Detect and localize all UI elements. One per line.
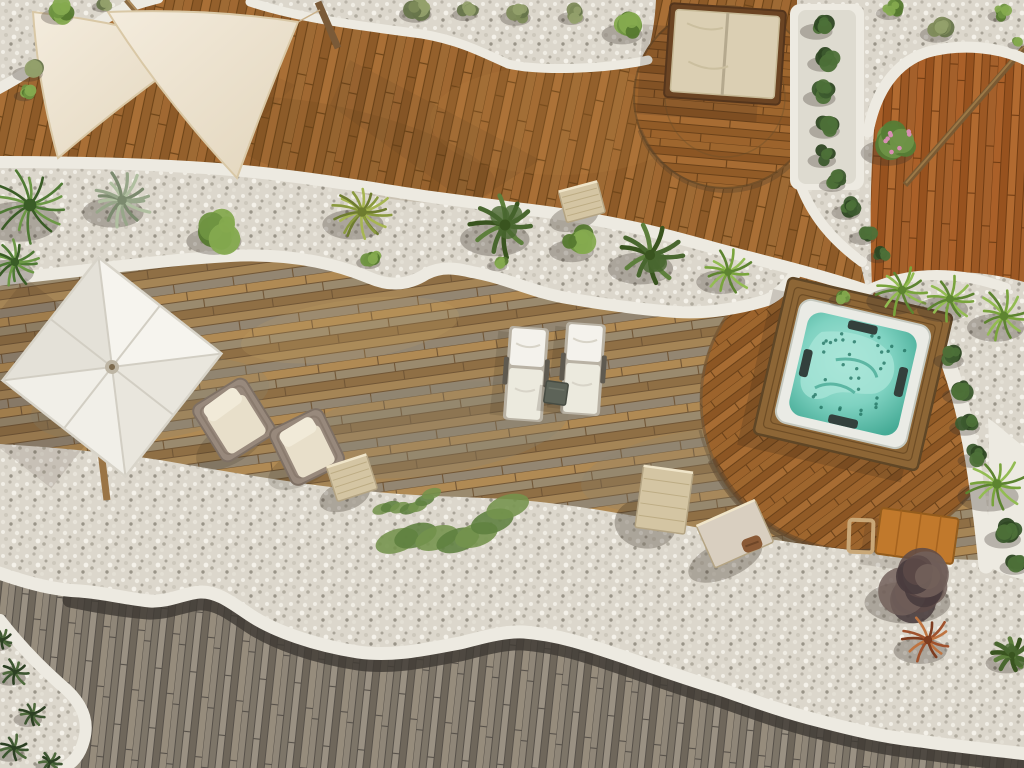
aerial-photo: Aerial drone view of a curved luxury roo… [0,0,1024,768]
